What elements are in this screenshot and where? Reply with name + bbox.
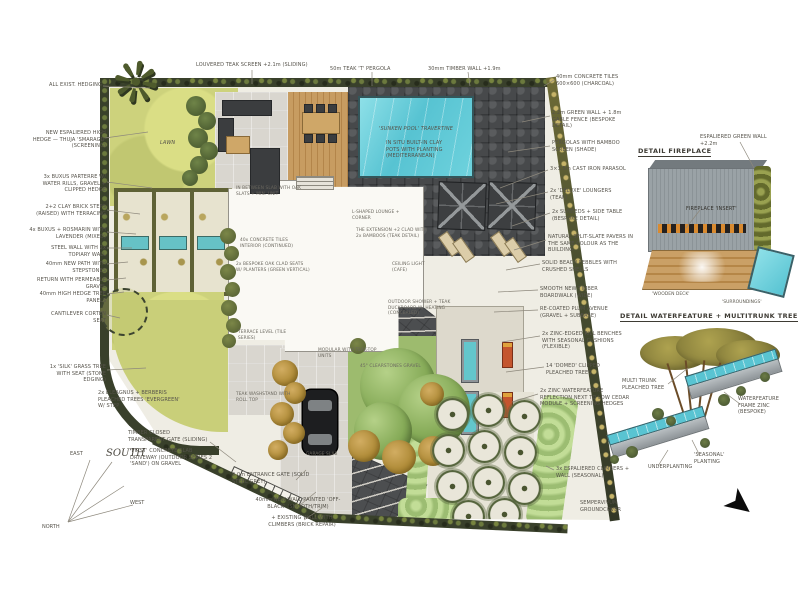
annotation-note: SEMPERVIVUM GROUNDCOVER: [580, 500, 650, 513]
annotation-note: 40x CONCRETE TILES INTERIOR (CONTINUED): [240, 238, 306, 249]
annotation-note: TIMBER CLOSED TRANSPARENT GATE (SLIDING): [128, 430, 208, 443]
pool-note: IN SITU BUILT-IN CLAY POTS WITH PLANTING…: [386, 140, 450, 160]
light-glow: [672, 252, 732, 282]
annotation-note: MODULAR WITH TEAK-TOP UNITS: [318, 348, 388, 359]
shrub: [198, 112, 216, 130]
tree-ochre: [268, 440, 288, 460]
parasol: [487, 181, 537, 231]
planting-tuft: [718, 394, 730, 406]
annotation-note: 2x BESPOKE OAK CLAD SEATS W/ PLANTERS (G…: [236, 262, 310, 273]
shrub: [224, 246, 239, 261]
planting-tuft: [652, 408, 664, 420]
green-wall-note: ESPALIERED GREEN WALL +2.2m: [700, 134, 784, 147]
annotation-note: 2x SUNBEDS + SIDE TABLE (BESPOKE DETAIL): [552, 209, 628, 222]
annotation-note: PERGOLAS WITH BAMBOO SCREEN (SHADE): [552, 140, 628, 153]
shrub: [220, 228, 236, 244]
annotation-note: 40mm NEW PATH WITH STEPSTONES: [28, 261, 106, 274]
parasol: [437, 181, 487, 231]
deck-caption: 'WOODEN DECK': [652, 292, 690, 297]
shrub: [220, 264, 236, 280]
annotation-note: 9.0m ENTRANCE GATE (SOLID STEEL GREY): [232, 472, 314, 485]
underplanting-note: UNDERPLANTING: [648, 464, 694, 471]
shrub: [182, 170, 198, 186]
shrub: [221, 300, 237, 316]
parterre-garden: [114, 188, 156, 296]
annotation-note: CANTILEVER CORTEN SEAT: [40, 311, 106, 324]
seasonal-planting-note: 'SEASONAL' PLANTING: [694, 452, 750, 465]
tree-ochre: [382, 440, 416, 474]
planting-tuft: [736, 386, 746, 396]
annotation-note: THE EXTENSION +2 CLAD WITH 2x BAMBOOS (T…: [356, 228, 428, 239]
chair: [328, 104, 337, 113]
detail-waterfeature-title: DETAIL WATERFEATURE + MULTITRUNK TREE: [620, 312, 798, 322]
annotation-note: 50m TEAK 'T' PERGOLA: [330, 66, 422, 73]
chair: [304, 134, 313, 143]
chair: [328, 134, 337, 143]
insert-note: FIREPLACE 'INSERT': [686, 206, 746, 213]
compass-east-label: EAST: [70, 451, 83, 457]
annotation-note: 'FIRST' CONCRETE SLAB DRIVEWAY (OUTDOOR …: [130, 448, 216, 468]
lawn-label: LAWN: [160, 140, 175, 147]
annotation-note: 3x ESPALIERED CLIMBERS + WALL (SEASONAL): [556, 466, 636, 479]
shrub: [225, 282, 240, 297]
annotation-note: L-SHAPED LOUNGE + CORNER: [352, 210, 412, 221]
annotation-note: 40mm NEW WALL PAINTED 'OFF-BLACK' (SMOOT…: [252, 497, 344, 510]
annotation-note: LOUVERED TEAK SCREEN +2.1m (SLIDING): [196, 62, 314, 69]
annotation-note: 14 'DOMED' CLIPPED PLEACHED TREES: [546, 363, 624, 376]
orchard-tree: [472, 394, 505, 427]
planting-tuft: [666, 416, 676, 426]
annotation-note: SMOOTH NEW TIMBER BOARDWALK (WIDE): [540, 286, 620, 299]
landscape-plan-canvas: 'SUNKEN POOL' TRAVERTINE IN SITU BUILT-I…: [0, 0, 800, 600]
orchard-tree: [504, 436, 537, 469]
annotation-note: RETURN WITH PERMEABLE GRAVEL: [34, 277, 106, 290]
annotation-note: NEW ESPALIERED HIGH HEDGE — THUJA 'SMARA…: [28, 130, 106, 150]
annotation-note: GARAGE SLAB: [306, 452, 346, 458]
annotation-note: 3x BUXUS PARTERRE W/ WATER RILLS, GRAVEL…: [26, 174, 106, 194]
tree-ochre: [348, 430, 380, 462]
annotation-note: NATURAL SPLIT-SLATE PAVERS IN THE SAME C…: [548, 234, 634, 254]
annotation-note: 2x ZINC-EDGED RILL BENCHES WITH SEASONAL…: [542, 331, 626, 351]
annotation-note: 30mm TIMBER WALL +1.9m: [428, 66, 524, 73]
chair: [304, 104, 313, 113]
annotation-note: 4x BUXUS + ROSMARIN WITH LAVENDER (MIXED…: [26, 227, 106, 240]
annotation-note: 2x 'DELUXE' LOUNGERS (TEAK): [550, 188, 628, 201]
annotation-note: 2x ZINC WATERFEATURE REFLECTION NEXT TO …: [540, 388, 632, 408]
annotation-note: TERRACE LEVEL (TILE SERIES): [238, 330, 294, 341]
orchard-tree: [436, 470, 469, 503]
parterre-garden: [152, 188, 194, 296]
annotation-note: ALL EXIST. HEDGING: [30, 82, 102, 89]
annotation-note: IN BETWEEN SLAB WITH OAK SLATS + MIN. UN…: [236, 186, 314, 197]
bench: [502, 342, 513, 368]
detail-fireplace-title: DETAIL FIREPLACE: [638, 147, 711, 157]
outdoor-rug: [226, 136, 250, 154]
orchard-tree: [436, 398, 469, 431]
planting-tuft: [760, 372, 770, 382]
tree-ochre: [283, 422, 305, 444]
green-wall: [754, 166, 771, 252]
annotation-note: 2.2m GREEN WALL + 1.8m GABLE FENCE (BESP…: [552, 110, 630, 130]
compass-north-label: NORTH: [42, 524, 60, 530]
car: [303, 390, 337, 454]
fire-slot: [658, 224, 746, 233]
annotation-note: 2x ELEAGNUS + BERBERIS PLEACHED TREES 'E…: [98, 390, 184, 410]
chair: [316, 134, 325, 143]
annotation-note: TEAK WASHSTAND WITH ROLL TOP: [236, 392, 296, 403]
annotation-note: STEEL WALL WITH 2x TOPIARY WALL: [30, 245, 106, 258]
page-turn-arrow-icon: ➤: [716, 481, 762, 528]
water-rill: [462, 340, 478, 382]
annotation-note: OUTDOOR SHOWER + TEAK DUCKBOARD W/ HEATI…: [388, 300, 460, 317]
planting-tuft: [626, 446, 638, 458]
annotation-note: CEILING LIGHT (CAFE): [392, 262, 440, 273]
annotation-note: 45° CLEARSTONES GRAVEL: [360, 364, 422, 370]
annotation-note: 3×3.5m CAST IRON PARASOL: [550, 166, 628, 173]
shrub: [222, 334, 236, 348]
swimming-pool: 'SUNKEN POOL' TRAVERTINE IN SITU BUILT-I…: [358, 96, 474, 178]
boundary-hedge-top: [104, 78, 550, 87]
specimen-tree: [100, 288, 148, 336]
annotation-note: 1x 'SILK' GRASS TREE WITH SEAT (STONE ED…: [36, 364, 106, 384]
annotation-note: 40mm CONCRETE TILES 600×600 (CHARCOAL): [556, 74, 632, 87]
annotation-note: RE-COATED PLUM AVENUE (GRAVEL + SUBBASE): [540, 306, 620, 319]
orchard-tree: [432, 434, 465, 467]
orchard-tree: [508, 400, 541, 433]
outdoor-sofa: [222, 100, 272, 116]
annotation-note: 40mm HIGH HEDGE TREE PANELS: [30, 291, 106, 304]
annotation-note: + EXISTING WALL WITH CLIMBERS (BRICK REP…: [258, 515, 346, 528]
zinc-frame-note: WATERFEATURE FRAME ZINC (BESPOKE): [738, 396, 794, 416]
planting-tuft: [610, 455, 619, 464]
dining-table: [302, 112, 340, 134]
compass-west-label: WEST: [130, 500, 144, 506]
orchard-tree: [468, 430, 501, 463]
planting-tuft: [700, 438, 710, 448]
surround-caption: 'SURROUNDINGS': [722, 300, 762, 305]
pool-label: 'SUNKEN POOL' TRAVERTINE: [370, 126, 462, 133]
orchard-tree: [472, 466, 505, 499]
chair: [316, 104, 325, 113]
annotation-note: SOLID BEACH PEBBLES WITH CRUSHED SHELLS: [542, 260, 626, 273]
annotation-note: 2+2 CLAY BRICK STEPS (RAISED) WITH TERRA…: [26, 204, 106, 217]
